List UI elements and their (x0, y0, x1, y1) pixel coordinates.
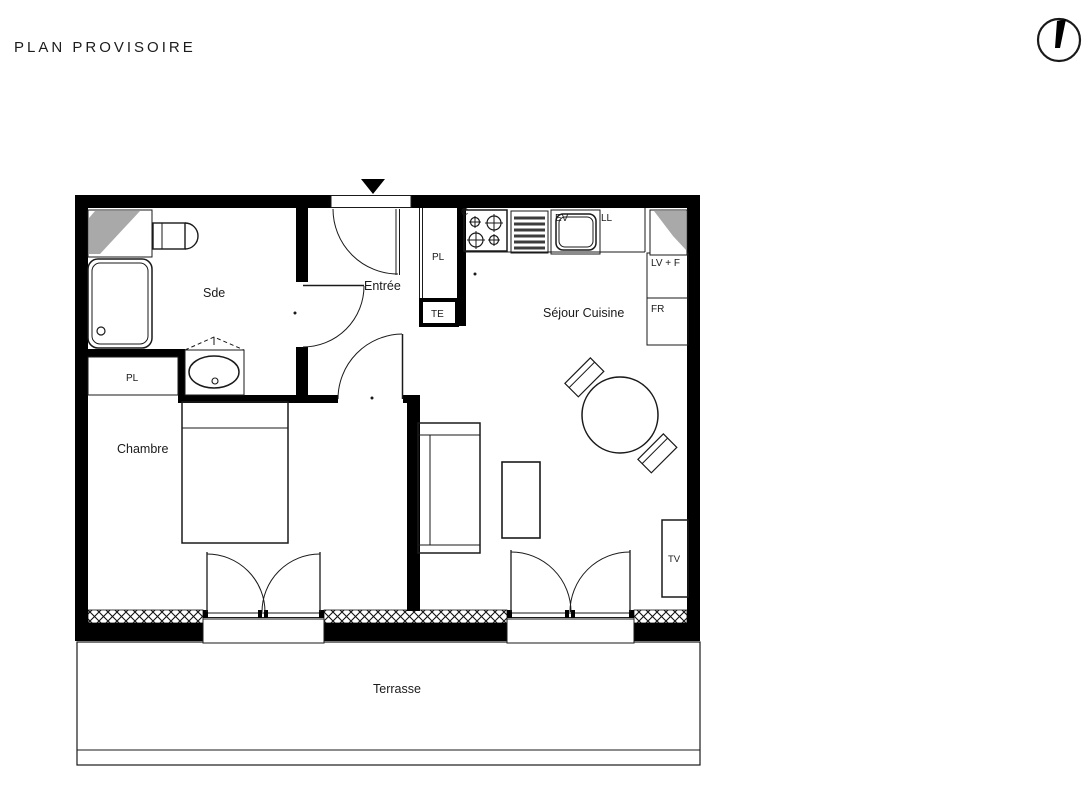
wall-bottom-left (75, 623, 204, 641)
wall-bathroom-upper (296, 208, 308, 282)
wall-left (75, 195, 88, 641)
wall-bottom-middle (323, 623, 508, 641)
entry-closet-label: PL (432, 252, 445, 263)
floor-plan-canvas: PLAN PROVISOIRE Terrasse (0, 0, 1089, 792)
duct-left (88, 210, 152, 257)
living-kitchen-label: Séjour Cuisine (543, 306, 624, 320)
electrical-panel-label: TE (431, 309, 444, 320)
entrance-label: Entrée (364, 279, 401, 293)
terrace-label: Terrasse (373, 682, 421, 696)
plan-title: PLAN PROVISOIRE (14, 39, 196, 56)
wall-top-right (411, 195, 700, 208)
bedroom-label: Chambre (117, 442, 168, 456)
wall-basin-niche (178, 349, 185, 395)
bedroom-window-sill (203, 619, 324, 643)
wall-bottom-right (633, 623, 700, 641)
living-window-sill (507, 619, 634, 643)
dishwasher-oven-label: LV + F (651, 258, 680, 269)
bathroom-closet-label: PL (126, 373, 139, 384)
wall-bathroom-lower (296, 347, 308, 395)
sink-label: EV (555, 213, 569, 224)
cooktop-label: C (461, 207, 468, 218)
wall-bathroom-closet (88, 349, 178, 357)
bathroom-label: Sde (203, 286, 225, 300)
wall-right (687, 195, 700, 641)
duct-right (650, 210, 687, 255)
tv-label: TV (668, 554, 681, 565)
fridge-label: FR (651, 304, 664, 315)
terrace-area: Terrasse (77, 642, 700, 765)
washing-machine-label: LL (601, 213, 613, 224)
floor-plan-page: PLAN PROVISOIRE Terrasse (0, 0, 1089, 792)
wall-top-left (75, 195, 331, 208)
